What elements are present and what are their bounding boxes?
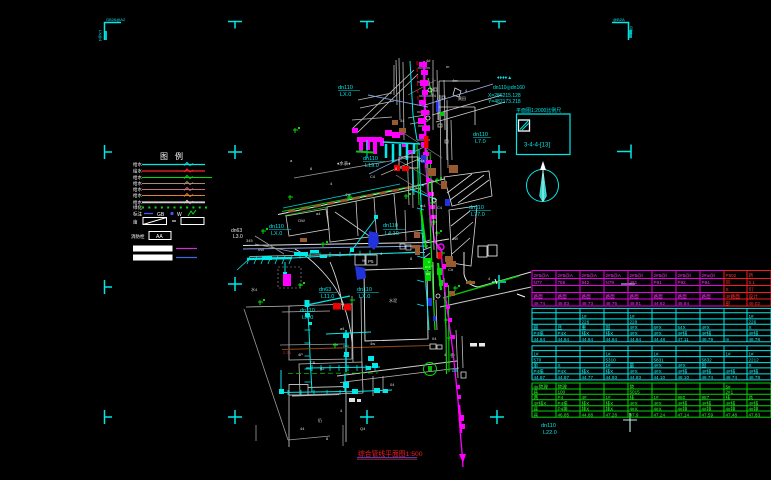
svg-text:L19.0: L19.0 — [365, 163, 379, 169]
svg-text:4#X: 4#X — [654, 401, 662, 406]
svg-text:46.85: 46.85 — [558, 412, 570, 417]
svg-text:X: X — [558, 363, 561, 368]
svg-text:4W: 4W — [452, 236, 458, 241]
svg-text:AA: AA — [156, 234, 163, 240]
svg-text:1#: 1# — [749, 352, 755, 357]
svg-text:dn110: dn110 — [363, 156, 378, 162]
svg-text:48.81: 48.81 — [630, 301, 642, 306]
svg-text:44: 44 — [400, 118, 405, 123]
svg-text:48.02: 48.02 — [749, 301, 761, 306]
svg-text:02: 02 — [320, 366, 325, 371]
svg-text:47.48: 47.48 — [726, 412, 738, 417]
svg-text:980: 980 — [678, 395, 686, 400]
svg-text:44.84: 44.84 — [606, 337, 618, 342]
svg-text:5.1: 5.1 — [749, 280, 756, 285]
svg-text:dn63: dn63 — [319, 287, 331, 293]
svg-text:987: 987 — [702, 395, 710, 400]
svg-text:黄田: 黄田 — [458, 95, 466, 101]
svg-text:C4: C4 — [370, 174, 376, 179]
svg-text:N77: N77 — [534, 280, 543, 285]
svg-text:绿化: 绿化 — [133, 204, 142, 211]
svg-text:W4: W4 — [430, 93, 437, 98]
svg-text:LX.0: LX.0 — [340, 92, 351, 98]
svg-text:图例: 图例 — [160, 151, 190, 161]
svg-text:路面: 路面 — [630, 293, 640, 300]
svg-text:a4: a4 — [316, 211, 321, 216]
svg-text:2#5@A: 2#5@A — [606, 273, 622, 278]
svg-text:排X: 排X — [582, 368, 590, 375]
svg-text:dn110: dn110 — [541, 423, 556, 429]
svg-text:C6: C6 — [310, 360, 316, 365]
svg-text:54X: 54X — [678, 325, 686, 330]
svg-text:4m: 4m — [452, 78, 458, 83]
svg-text:4#X: 4#X — [630, 401, 638, 406]
svg-text:dn110: dn110 — [357, 287, 372, 293]
svg-text:路面: 路面 — [702, 293, 712, 300]
svg-text:48.78: 48.78 — [749, 337, 761, 342]
svg-text:47.83: 47.83 — [749, 412, 761, 417]
svg-text:44.88: 44.88 — [582, 412, 594, 417]
svg-text:@B2A: @B2A — [613, 17, 625, 22]
svg-text:44.87: 44.87 — [558, 375, 570, 380]
svg-text:4#X: 4#X — [630, 406, 638, 411]
svg-text:排X: 排X — [606, 330, 614, 337]
svg-text:且: 且 — [558, 325, 563, 330]
svg-text:44.93: 44.93 — [606, 375, 618, 380]
svg-text:44.84: 44.84 — [558, 337, 570, 342]
svg-text:L4.10: L4.10 — [385, 231, 399, 237]
svg-text:0W: 0W — [258, 247, 264, 252]
svg-text:LX.0: LX.0 — [302, 315, 313, 321]
svg-text:N79: N79 — [606, 280, 615, 285]
svg-text:P4排: P4排 — [534, 330, 545, 337]
svg-text:1#: 1# — [534, 352, 540, 357]
svg-text:228: 228 — [630, 319, 638, 324]
svg-text:L3.0: L3.0 — [233, 234, 243, 240]
svg-text:2.38: 2.38 — [283, 350, 292, 355]
svg-text:排: 排 — [630, 394, 635, 401]
svg-text:设计: 设计 — [749, 293, 759, 300]
svg-text:路面: 路面 — [606, 293, 616, 300]
svg-text:排: 排 — [726, 394, 731, 401]
svg-text:♦♦♦♦▲: ♦♦♦♦▲ — [497, 75, 512, 81]
svg-text:C4: C4 — [437, 205, 443, 210]
svg-text:04: 04 — [432, 336, 437, 341]
svg-text:48.74: 48.74 — [702, 375, 714, 380]
svg-text:P91: P91 — [654, 280, 663, 285]
svg-text:4#X: 4#X — [654, 331, 662, 336]
svg-text:2#5@/: 2#5@/ — [630, 273, 644, 278]
svg-text:Y=482173.218: Y=482173.218 — [488, 99, 521, 105]
svg-text:345: 345 — [246, 238, 253, 243]
svg-text:1#: 1# — [630, 314, 636, 319]
svg-text:44.83: 44.83 — [630, 375, 642, 380]
svg-text:4#排: 4#排 — [678, 330, 688, 337]
svg-text:♦水表♦: ♦水表♦ — [337, 160, 351, 167]
svg-text:4a: 4a — [420, 158, 425, 163]
svg-text:W: W — [362, 258, 366, 263]
svg-text:2#5@A: 2#5@A — [558, 273, 574, 278]
svg-text:44.10: 44.10 — [654, 375, 666, 380]
svg-text:2#1: 2#1 — [726, 390, 734, 395]
svg-text:P5: P5 — [368, 259, 374, 264]
svg-text:m4: m4 — [420, 203, 426, 208]
svg-text:P4X: P4X — [558, 369, 567, 374]
svg-text:1#: 1# — [726, 352, 732, 357]
svg-text:L11.0: L11.0 — [321, 294, 334, 300]
svg-text:44.48: 44.48 — [654, 337, 666, 342]
svg-text:47.9: 47.9 — [630, 412, 639, 417]
svg-text:4#排: 4#排 — [702, 405, 712, 412]
svg-text:路面: 路面 — [654, 293, 664, 300]
svg-text:路面: 路面 — [582, 293, 592, 300]
svg-text:L7.0: L7.0 — [475, 139, 486, 145]
svg-text:P502: P502 — [726, 273, 737, 278]
svg-text:P4X: P4X — [558, 331, 567, 336]
svg-text:P4排: P4排 — [534, 368, 545, 375]
svg-text:P4排: P4排 — [558, 405, 569, 412]
svg-text:765: 765 — [558, 280, 566, 285]
svg-text:P94: P94 — [702, 280, 711, 285]
svg-text:4#排: 4#排 — [749, 405, 759, 412]
svg-text:1#: 1# — [654, 352, 660, 357]
svg-text:4#X: 4#X — [630, 369, 638, 374]
svg-text:4#1: 4#1 — [630, 280, 638, 285]
svg-text:LX.0: LX.0 — [359, 294, 370, 300]
svg-text:dn110: dn110 — [300, 308, 315, 314]
svg-text:44.87: 44.87 — [534, 375, 546, 380]
svg-text:5832: 5832 — [702, 358, 713, 363]
svg-text:新: 新 — [749, 272, 754, 279]
svg-text:44.84: 44.84 — [630, 337, 642, 342]
svg-text:消防栓: 消防栓 — [131, 233, 145, 240]
svg-text:5015: 5015 — [630, 390, 641, 395]
svg-text:给水: 给水 — [133, 168, 142, 175]
svg-text:1#: 1# — [606, 363, 612, 368]
svg-text:Q4: Q4 — [360, 426, 366, 431]
svg-text:给水: 给水 — [133, 174, 142, 181]
svg-text:4#X: 4#X — [654, 406, 662, 411]
svg-text:48.76: 48.76 — [606, 301, 618, 306]
svg-text:m: m — [726, 337, 730, 342]
svg-text:942: 942 — [582, 280, 590, 285]
svg-text:C#: C# — [448, 267, 454, 272]
svg-text:L22.0: L22.0 — [543, 430, 557, 436]
svg-text:44: 44 — [300, 426, 305, 431]
svg-text:给水: 给水 — [133, 192, 142, 199]
svg-text:48.73: 48.73 — [582, 301, 594, 306]
svg-text:排X: 排X — [606, 368, 614, 375]
svg-text:4#: 4# — [426, 58, 431, 63]
svg-text:亩: 亩 — [133, 219, 138, 226]
svg-text:OW: OW — [298, 218, 305, 223]
svg-text:5831: 5831 — [654, 358, 665, 363]
svg-text:4#X: 4#X — [630, 325, 638, 330]
svg-text:47.24: 47.24 — [654, 412, 666, 417]
svg-text:给水: 给水 — [133, 161, 142, 168]
svg-text:标注: 标注 — [133, 211, 142, 218]
svg-text:48.74: 48.74 — [534, 301, 546, 306]
svg-text:4P: 4P — [298, 352, 303, 357]
svg-text:X: X — [749, 325, 752, 330]
svg-text:226: 226 — [749, 319, 757, 324]
svg-text:4#排: 4#排 — [749, 368, 759, 375]
svg-text:4#排: 4#排 — [749, 330, 759, 337]
svg-text:排X: 排X — [582, 330, 590, 337]
svg-text:48.10: 48.10 — [678, 375, 690, 380]
svg-text:dn110: dn110 — [469, 205, 484, 211]
svg-text:1#: 1# — [654, 395, 660, 400]
svg-text:47.59: 47.59 — [702, 412, 714, 417]
svg-text:平面图1:2000比例尺: 平面图1:2000比例尺 — [516, 107, 561, 114]
svg-text:最: 最 — [630, 362, 635, 369]
svg-text:X: X — [726, 287, 729, 292]
svg-text:2#5@/: 2#5@/ — [678, 273, 692, 278]
svg-text:路面: 路面 — [558, 293, 568, 300]
svg-text:水泥: 水泥 — [389, 297, 397, 303]
svg-text:04: 04 — [390, 382, 395, 387]
svg-text:44.84: 44.84 — [534, 337, 546, 342]
svg-text:们: 们 — [749, 286, 754, 293]
svg-text:dn110: dn110 — [269, 224, 284, 230]
svg-text:单: 单 — [534, 362, 539, 369]
svg-text:47.14: 47.14 — [678, 412, 690, 417]
svg-text:给水: 给水 — [133, 186, 142, 193]
svg-text:48.74: 48.74 — [726, 375, 738, 380]
svg-text:4%: 4% — [345, 192, 351, 197]
svg-text:1#: 1# — [606, 352, 612, 357]
svg-text:4#X: 4#X — [702, 325, 710, 330]
svg-text:路面: 路面 — [678, 293, 688, 300]
svg-text:a4: a4 — [340, 326, 345, 331]
svg-text:4#排: 4#排 — [726, 405, 736, 412]
svg-text:2#5@/: 2#5@/ — [654, 273, 668, 278]
svg-text:4#路面: 4#路面 — [726, 293, 741, 300]
svg-text:重: 重 — [582, 324, 587, 330]
svg-text:P4: P4 — [558, 395, 564, 400]
svg-text:5310: 5310 — [606, 358, 617, 363]
svg-text:44.82: 44.82 — [654, 301, 666, 306]
svg-text:1#: 1# — [749, 314, 755, 319]
svg-text:两: 两 — [534, 395, 539, 400]
svg-text:44.77: 44.77 — [582, 375, 594, 380]
svg-text:100: 100 — [558, 390, 566, 395]
svg-text:4#X: 4#X — [654, 363, 662, 368]
svg-text:路面: 路面 — [534, 293, 544, 300]
svg-text:P92: P92 — [678, 280, 687, 285]
svg-text:2#u@/: 2#u@/ — [702, 273, 716, 278]
svg-text:4#: 4# — [582, 395, 588, 400]
svg-text:2212: 2212 — [749, 358, 760, 363]
svg-text:4#排: 4#排 — [702, 330, 712, 337]
svg-text:48.78: 48.78 — [749, 375, 761, 380]
svg-text:LX@4: LX@4 — [98, 30, 103, 42]
svg-text:1#: 1# — [582, 314, 588, 319]
svg-text:GB26@A2: GB26@A2 — [106, 17, 126, 22]
svg-text:4#排: 4#排 — [702, 368, 712, 375]
svg-text:3-4-4-[13]: 3-4-4-[13] — [524, 143, 550, 149]
svg-text:dn110: dn110 — [383, 223, 398, 229]
svg-text:仍: 仍 — [318, 417, 322, 423]
svg-text:排X: 排X — [606, 405, 614, 412]
svg-text:综合管线平面图1:500: 综合管线平面图1:500 — [358, 449, 423, 458]
svg-text:4#X: 4#X — [630, 331, 638, 336]
svg-text:排X: 排X — [582, 405, 590, 412]
svg-text:44.84: 44.84 — [582, 337, 594, 342]
svg-text:水4: 水4 — [251, 286, 258, 292]
svg-text:dB: dB — [452, 368, 458, 373]
svg-text:4#排: 4#排 — [678, 405, 688, 412]
svg-text:dn110◎dn160: dn110◎dn160 — [493, 85, 525, 91]
svg-text:570: 570 — [534, 358, 542, 363]
svg-text:dn110: dn110 — [473, 132, 488, 138]
svg-text:48.84: 48.84 — [678, 301, 690, 306]
svg-text:dn110: dn110 — [338, 85, 353, 91]
svg-text:LX.0: LX.0 — [271, 231, 282, 237]
svg-text:4w: 4w — [370, 341, 375, 346]
svg-text:L77.0: L77.0 — [471, 212, 485, 218]
svg-text:4#X: 4#X — [654, 369, 662, 374]
svg-text:226: 226 — [582, 319, 590, 324]
svg-text:部: 部 — [726, 300, 731, 307]
svg-text:6#X: 6#X — [654, 325, 662, 330]
svg-text:4#排: 4#排 — [678, 368, 688, 375]
svg-text:1#: 1# — [606, 395, 612, 400]
svg-text:X: X — [749, 363, 752, 368]
svg-text:48.79: 48.79 — [702, 337, 714, 342]
svg-text:47.11: 47.11 — [678, 337, 690, 342]
svg-text:2#5@A: 2#5@A — [534, 273, 550, 278]
svg-text:给水: 给水 — [133, 180, 142, 187]
svg-text:4#排: 4#排 — [726, 368, 736, 375]
svg-text:4#X: 4#X — [678, 363, 686, 368]
svg-text:47.28: 47.28 — [606, 412, 618, 417]
svg-text:2#5@A: 2#5@A — [582, 273, 598, 278]
svg-text:48.83: 48.83 — [558, 301, 570, 306]
